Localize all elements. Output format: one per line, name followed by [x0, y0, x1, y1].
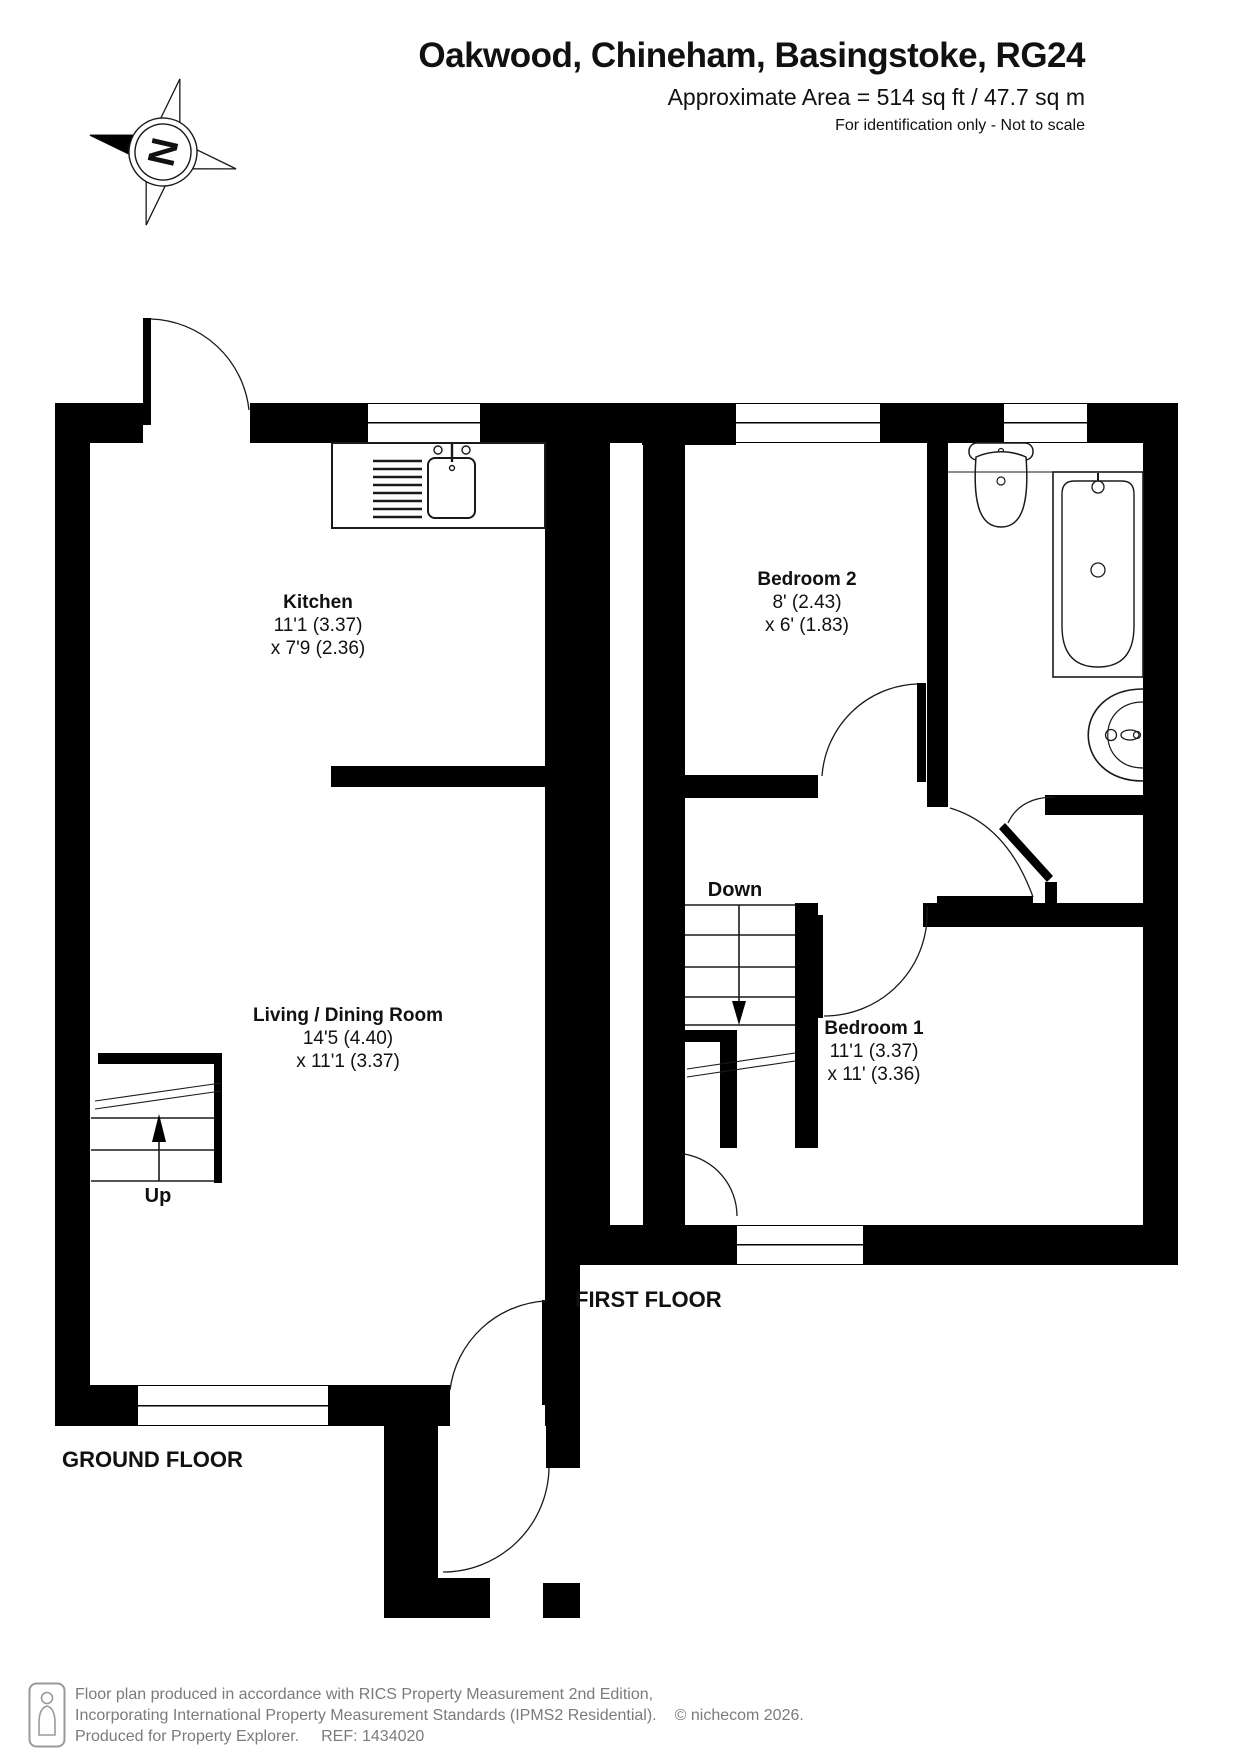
- door-swing-arc: [822, 684, 917, 776]
- basin-icon: [1088, 689, 1143, 781]
- door-swing-arc: [1008, 797, 1055, 823]
- room-label-kitchen: Kitchen 11'1 (3.37) x 7'9 (2.36): [271, 591, 365, 660]
- footer-line-1: Floor plan produced in accordance with R…: [75, 1684, 804, 1705]
- floorplan-page: Oakwood, Chineham, Basingstoke, RG24 App…: [0, 0, 1241, 1755]
- room-label-living-dining: Living / Dining Room 14'5 (4.40) x 11'1 …: [253, 1004, 443, 1073]
- stairs-up-label: Up: [145, 1185, 172, 1208]
- footer-line-3: Produced for Property Explorer.REF: 1434…: [75, 1726, 804, 1747]
- door-swing-arc: [824, 906, 927, 1016]
- copyright: © nichecom 2026.: [675, 1707, 804, 1724]
- stairs-down: [685, 905, 795, 1077]
- bath-icon: [1053, 472, 1143, 677]
- door-swing-arc: [450, 1301, 546, 1390]
- door-swing-arc: [443, 1468, 549, 1572]
- person-scale-icon: [28, 1682, 66, 1748]
- room-label-bedroom-1: Bedroom 1 11'1 (3.37) x 11' (3.36): [824, 1017, 923, 1086]
- ground-floor-label: GROUND FLOOR: [62, 1447, 243, 1473]
- door-swing-arc: [684, 1154, 737, 1216]
- stairs-up: [91, 1083, 221, 1181]
- reference-number: REF: 1434020: [321, 1728, 424, 1745]
- down-arrow-icon: [732, 1001, 746, 1025]
- footer-line-2: Incorporating International Property Mea…: [75, 1705, 804, 1726]
- sink-icon: [332, 443, 545, 528]
- door-leaf: [999, 823, 1053, 882]
- footer: Floor plan produced in accordance with R…: [75, 1684, 804, 1747]
- toilet-icon: [969, 443, 1033, 527]
- floorplan-lineart: N: [0, 0, 1241, 1755]
- first-floor-label: FIRST FLOOR: [575, 1287, 722, 1313]
- room-label-bedroom-2: Bedroom 2 8' (2.43) x 6' (1.83): [757, 568, 856, 637]
- door-swing-arc: [151, 319, 249, 410]
- compass-north-icon: N: [73, 62, 253, 242]
- stairs-down-label: Down: [708, 879, 762, 902]
